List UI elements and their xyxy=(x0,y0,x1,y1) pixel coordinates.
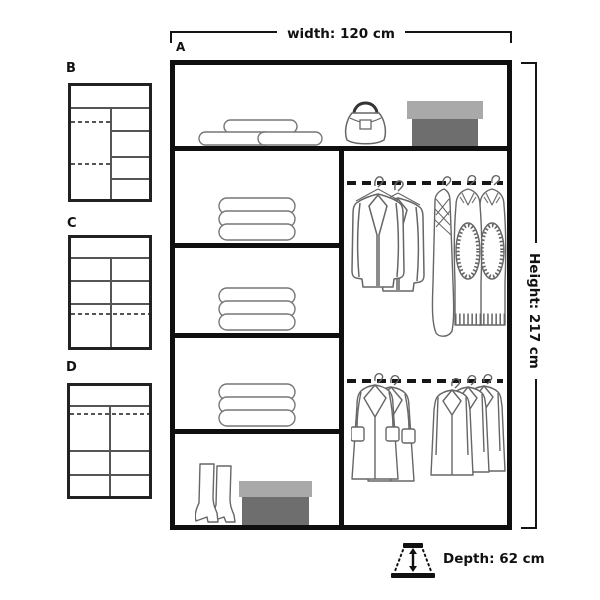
folded-clothes-icon xyxy=(218,197,296,242)
wardrobe-dimension-diagram: width: 120 cm A Height: 217 cm Depth: 62… xyxy=(0,0,600,600)
center-vertical-divider xyxy=(339,151,344,525)
height-dimension-tick-bottom xyxy=(521,527,536,529)
left-shelf-divider-1 xyxy=(175,243,339,248)
main-wardrobe-label: A xyxy=(176,40,185,54)
boots-icon xyxy=(195,463,241,525)
knitwear-icon xyxy=(430,173,510,343)
thumbnail-c-label: C xyxy=(67,216,77,231)
width-label: width: 120 cm xyxy=(277,26,405,42)
storage-box-icon xyxy=(239,481,312,525)
height-dimension-tick-top xyxy=(521,62,536,64)
left-shelf-divider-3 xyxy=(175,429,339,434)
thumbnail-b-label: B xyxy=(66,61,76,76)
thumbnail-b-layout xyxy=(68,83,152,202)
thumbnail-d-layout xyxy=(67,383,152,499)
height-label: Height: 217 cm xyxy=(526,243,542,379)
thumbnail-c-layout xyxy=(68,235,152,350)
pillows-icon xyxy=(198,119,323,146)
overcoats-icon xyxy=(429,373,507,477)
folded-clothes-icon xyxy=(218,287,296,332)
depth-label: Depth: 62 cm xyxy=(443,551,545,567)
thumbnail-d-label: D xyxy=(66,360,77,375)
coats-icon xyxy=(351,371,417,485)
depth-icon xyxy=(389,541,437,579)
width-label-wrap: width: 120 cm xyxy=(170,23,512,42)
storage-box-icon xyxy=(407,101,483,146)
left-shelf-divider-2 xyxy=(175,333,339,338)
handbag-icon xyxy=(342,94,389,146)
folded-clothes-icon xyxy=(218,383,296,428)
jackets-icon xyxy=(349,173,427,295)
